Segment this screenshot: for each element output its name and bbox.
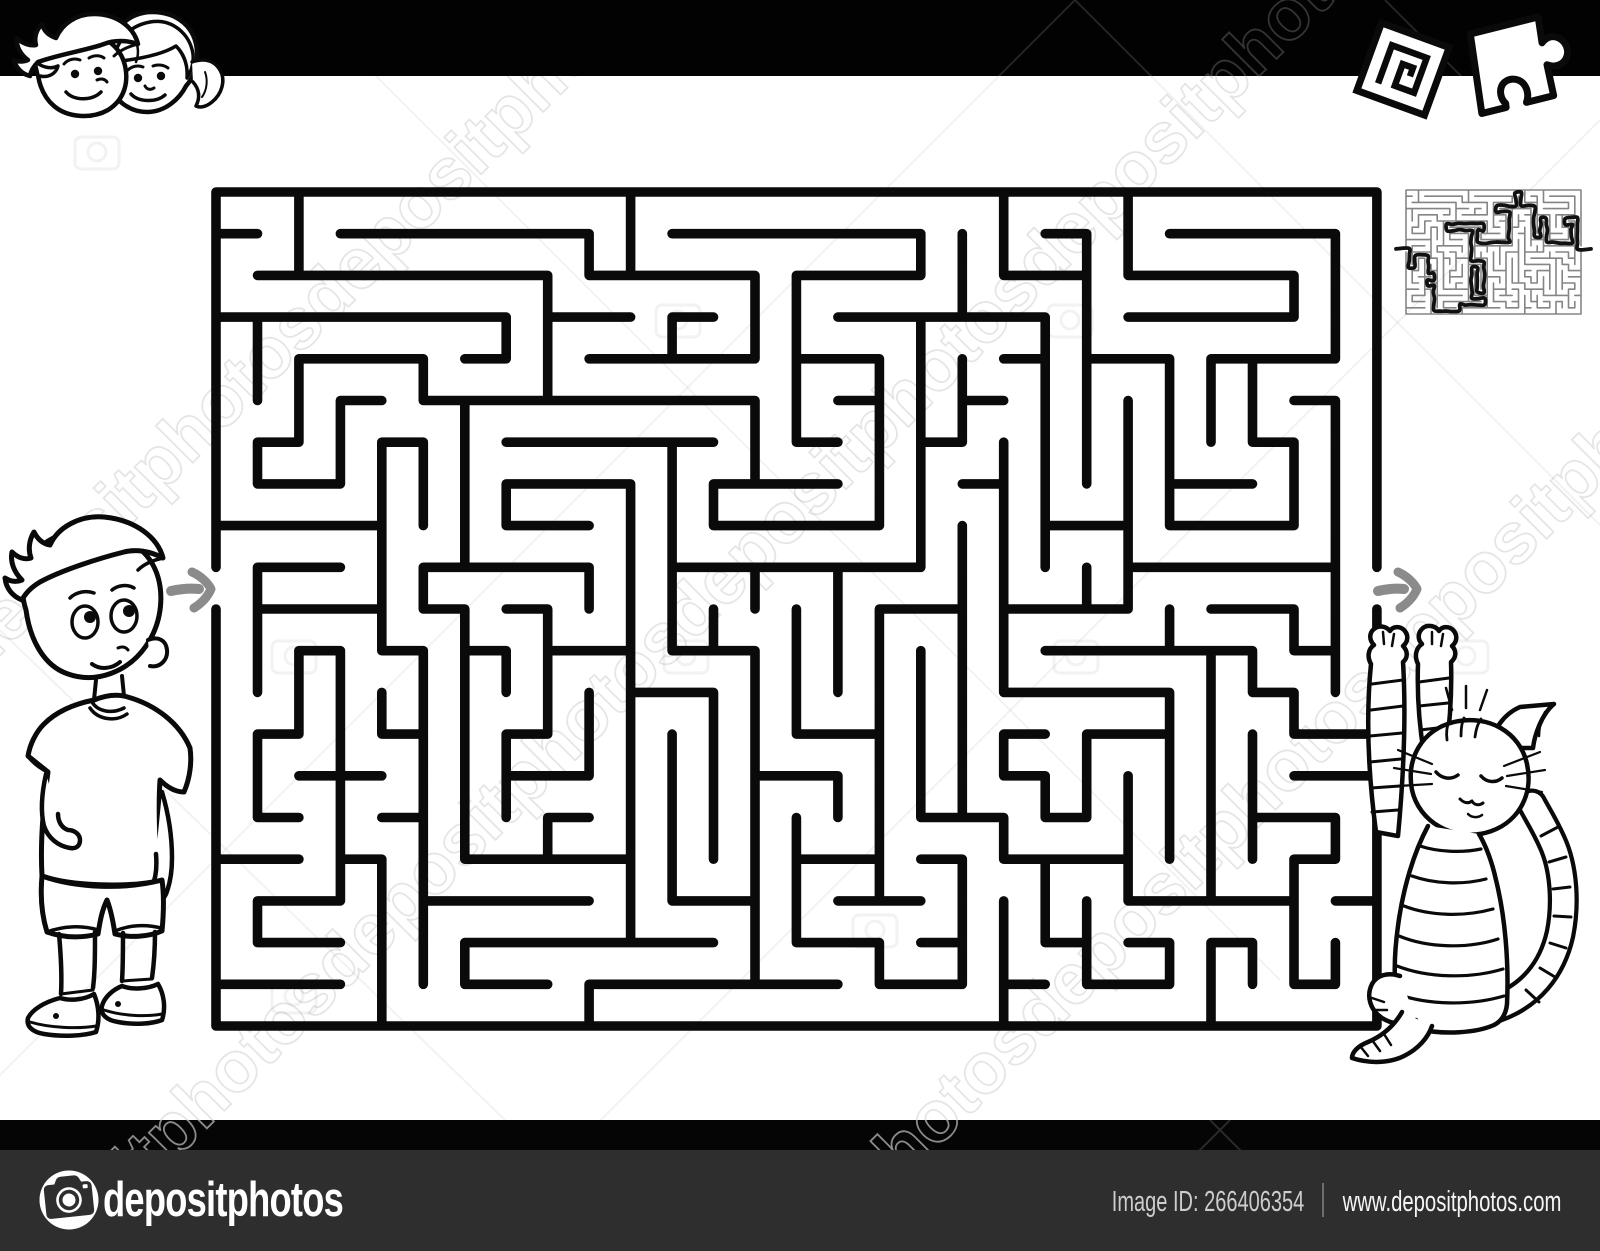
svg-text:www.depositphotos.com: www.depositphotos.com — [1342, 1186, 1562, 1218]
svg-text:Image ID: 266406354: Image ID: 266406354 — [1112, 1185, 1305, 1218]
svg-text:depositphotos: depositphotos — [103, 1173, 343, 1228]
